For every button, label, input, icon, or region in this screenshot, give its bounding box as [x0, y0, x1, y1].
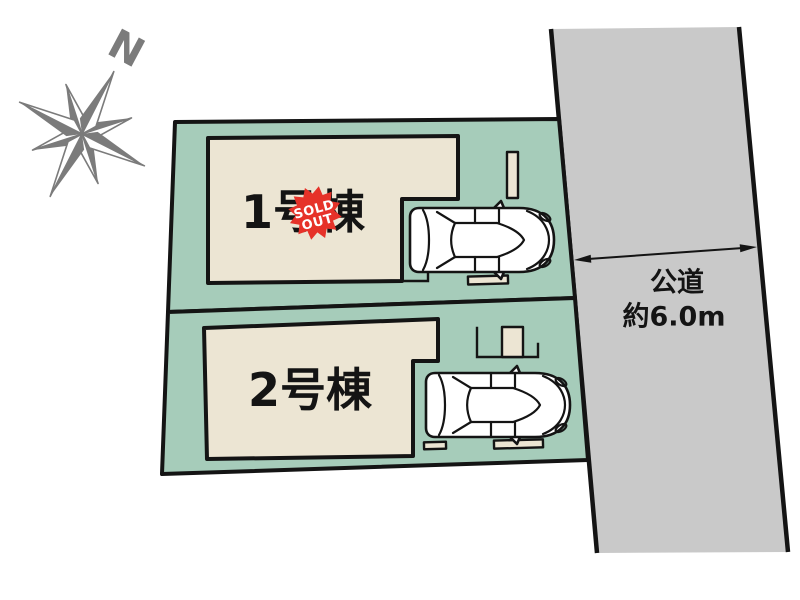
site-plan-drawing: 公道 約6.0m 1号棟 SOLD OUT 2号棟 N: [0, 0, 800, 600]
car-1: [410, 201, 554, 279]
road-width-label: 約6.0m: [623, 301, 726, 333]
building-2-label: 2号棟: [248, 363, 373, 417]
road-name-label: 公道: [650, 267, 704, 299]
compass-rose-icon: [0, 40, 176, 228]
parking-divider-stripe-1: [507, 152, 518, 198]
north-label: N: [100, 21, 151, 77]
car-2: [426, 366, 570, 444]
entrance-step-2: [502, 327, 523, 357]
parking-stripe-2a: [424, 442, 446, 450]
site-plan-page: 公道 約6.0m 1号棟 SOLD OUT 2号棟 N: [0, 0, 800, 600]
